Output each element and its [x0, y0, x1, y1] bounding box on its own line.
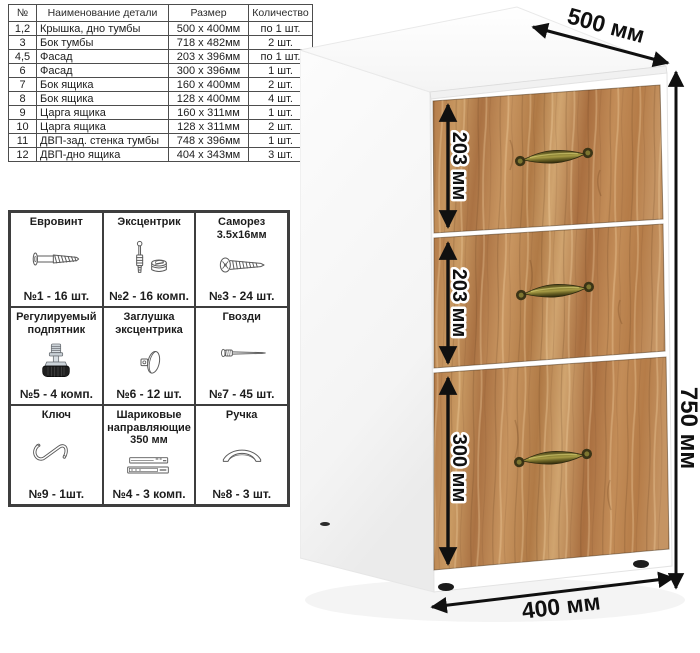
hardware-item-title: Ручка [226, 409, 257, 422]
hardware-item-count: №3 - 24 шт. [209, 289, 275, 303]
part-size: 404 x 343мм [169, 148, 249, 162]
ball-bearing-slides-icon [128, 457, 169, 472]
hardware-item-count: №1 - 16 шт. [24, 289, 90, 303]
part-number: 9 [9, 106, 37, 120]
self-tapping-screw-icon [220, 258, 264, 272]
drawer-handle-icon [223, 450, 260, 461]
part-name: Царга ящика [37, 106, 169, 120]
hardware-item-title: Саморез 3.5х16мм [198, 216, 285, 241]
hardware-item-title: Шариковые направляющие 350 мм [106, 409, 193, 447]
parts-table: № Наименование детали Размер Количество … [8, 4, 313, 162]
hardware-item: Эксцентрик №2 - 16 комп. [103, 212, 196, 307]
part-size: 500 x 400мм [169, 22, 249, 36]
hardware-item-count: №8 - 3 шт. [212, 487, 271, 501]
hardware-item-title: Эксцентрик [117, 216, 180, 229]
drawer1-dimension-label: 203 мм [448, 132, 470, 201]
part-number: 7 [9, 78, 37, 92]
hardware-item-count: №7 - 45 шт. [209, 387, 275, 401]
part-size: 203 x 396мм [169, 50, 249, 64]
hardware-item-title: Регулируемый подпятник [13, 311, 100, 336]
hardware-item-count: №5 - 4 комп. [20, 387, 93, 401]
cabinet-foot-right [633, 560, 649, 568]
hardware-item-count: №2 - 16 комп. [109, 289, 189, 303]
table-row: 12 ДВП-дно ящика 404 x 343мм 3 шт. [9, 148, 313, 162]
part-name: Бок ящика [37, 78, 169, 92]
hardware-item-title: Гвозди [222, 311, 260, 324]
assembly-instruction-page: № Наименование детали Размер Количество … [0, 0, 700, 648]
parts-table-header: № Наименование детали Размер Количество [9, 5, 313, 22]
hardware-item: Заглушка эксцентрика №6 - 12 шт. [103, 307, 196, 405]
part-number: 11 [9, 134, 37, 148]
cam-cap-icon [141, 350, 161, 374]
euro-screw-icon [34, 253, 79, 265]
part-number: 6 [9, 64, 37, 78]
hardware-item: Регулируемый подпятник №5 - 4 комп. [10, 307, 103, 405]
table-row: 3 Бок тумбы 718 x 482мм 2 шт. [9, 36, 313, 50]
height-dimension-label: 750 мм [675, 387, 700, 469]
part-name: ДВП-зад. стенка тумбы [37, 134, 169, 148]
cabinet-back-foot [320, 522, 330, 526]
part-size: 300 x 396мм [169, 64, 249, 78]
hardware-item: Ручка №8 - 3 шт. [195, 405, 288, 505]
part-size: 748 x 396мм [169, 134, 249, 148]
hardware-item-count: №4 - 3 комп. [112, 487, 185, 501]
table-row: 4,5 Фасад 203 x 396мм по 1 шт. [9, 50, 313, 64]
cabinet-drawing: 500 мм 750 мм 400 мм 203 мм 203 мм 300 м… [300, 0, 700, 648]
part-size: 128 x 311мм [169, 120, 249, 134]
part-number: 3 [9, 36, 37, 50]
table-row: 7 Бок ящика 160 x 400мм 2 шт. [9, 78, 313, 92]
part-size: 718 x 482мм [169, 36, 249, 50]
part-name: Бок тумбы [37, 36, 169, 50]
part-number: 10 [9, 120, 37, 134]
cabinet-illustration: 500 мм 750 мм 400 мм 203 мм 203 мм 300 м… [300, 0, 700, 648]
table-row: 6 Фасад 300 x 396мм 1 шт. [9, 64, 313, 78]
hardware-item-title: Евровинт [30, 216, 83, 229]
part-name: Царга ящика [37, 120, 169, 134]
part-name: Бок ящика [37, 92, 169, 106]
table-row: 8 Бок ящика 128 x 400мм 4 шт. [9, 92, 313, 106]
table-row: 9 Царга ящика 160 x 311мм 1 шт. [9, 106, 313, 120]
part-name: Фасад [37, 64, 169, 78]
hardware-item: Гвозди №7 - 45 шт. [195, 307, 288, 405]
part-name: Фасад [37, 50, 169, 64]
part-size: 160 x 311мм [169, 106, 249, 120]
hardware-item-title: Ключ [42, 409, 71, 422]
hardware-item: Евровинт №1 - 16 шт. [10, 212, 103, 307]
hardware-item-count: №9 - 1шт. [29, 487, 85, 501]
cabinet-side-panel [300, 50, 434, 592]
part-number: 8 [9, 92, 37, 106]
cabinet-foot-left [438, 583, 454, 591]
drawer2-dimension-label: 203 мм [448, 269, 470, 338]
table-row: 1,2 Крышка, дно тумбы 500 x 400мм по 1 ш… [9, 22, 313, 36]
col-number: № [9, 5, 37, 22]
hardware-item: Саморез 3.5х16мм №3 - 24 шт. [195, 212, 288, 307]
part-size: 160 x 400мм [169, 78, 249, 92]
hardware-item: Шариковые направляющие 350 мм №4 - 3 ком… [103, 405, 196, 505]
part-number: 1,2 [9, 22, 37, 36]
part-name: Крышка, дно тумбы [37, 22, 169, 36]
hardware-item-title: Заглушка эксцентрика [106, 311, 193, 336]
hex-key-icon [35, 445, 67, 460]
hardware-item-count: №6 - 12 шт. [116, 387, 182, 401]
adjustable-foot-icon [43, 344, 70, 377]
table-row: 10 Царга ящика 128 x 311мм 2 шт. [9, 120, 313, 134]
col-size: Размер [169, 5, 249, 22]
part-number: 4,5 [9, 50, 37, 64]
part-name: ДВП-дно ящика [37, 148, 169, 162]
hardware-item: Ключ №9 - 1шт. [10, 405, 103, 505]
drawer3-dimension-label: 300 мм [448, 434, 470, 503]
cam-bolt-icon [137, 241, 167, 272]
part-size: 128 x 400мм [169, 92, 249, 106]
part-number: 12 [9, 148, 37, 162]
table-row: 11 ДВП-зад. стенка тумбы 748 x 396мм 1 ш… [9, 134, 313, 148]
nail-icon [221, 350, 265, 357]
col-name: Наименование детали [37, 5, 169, 22]
hardware-grid: Евровинт №1 - 16 шт. Эксцентрик №2 - 16 … [8, 210, 290, 507]
